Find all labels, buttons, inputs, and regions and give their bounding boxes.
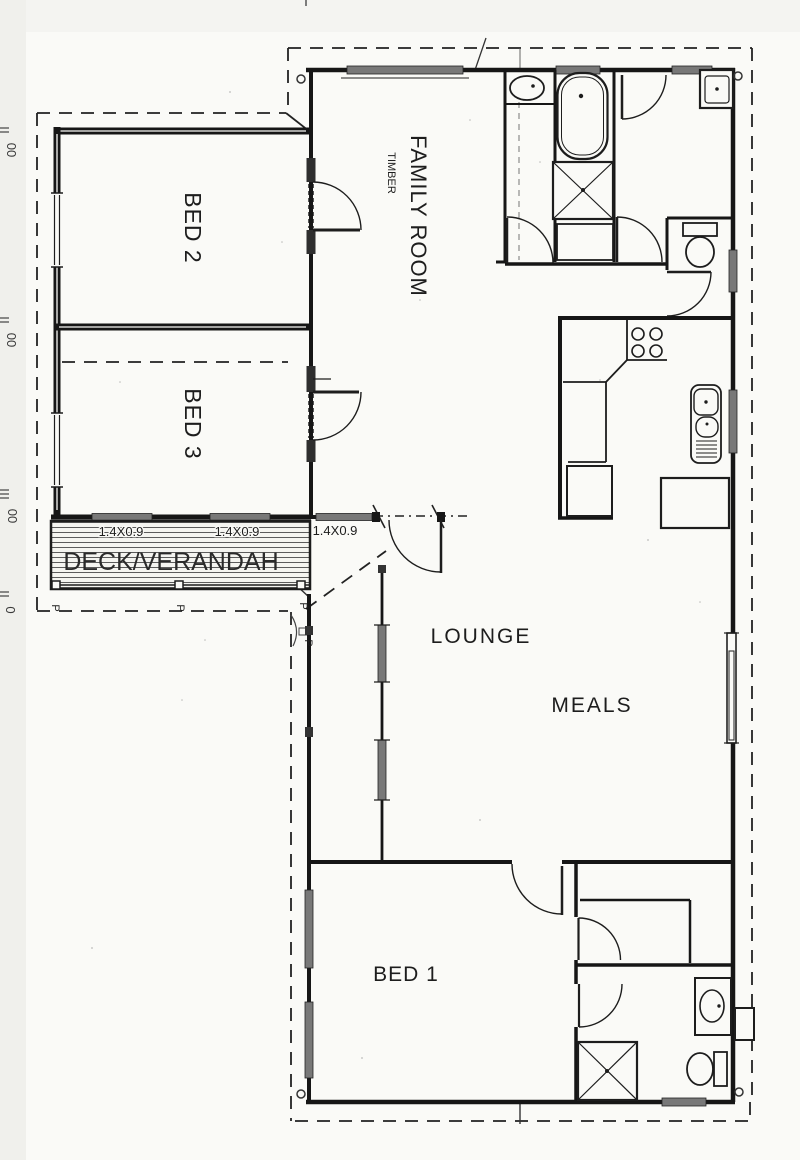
room-label-lounge: LOUNGE — [431, 625, 532, 648]
kitchen-sink — [691, 385, 721, 463]
lounge-wall-jamb — [305, 626, 313, 635]
ensuite-south-window — [662, 1098, 706, 1106]
hot-water-unit — [735, 1008, 754, 1040]
edge-mark: 0 — [3, 606, 18, 613]
meals-east-window — [724, 633, 739, 743]
floor-plan-scan: BED 2 BED 3 FAMILY ROOM TIMBER DECK/VERA… — [0, 0, 800, 1160]
deck-post — [175, 581, 183, 589]
deck-post — [297, 581, 305, 589]
lounge-window-1 — [378, 625, 386, 682]
deck-window-2 — [210, 514, 270, 521]
family-room-north-window — [347, 66, 463, 74]
family-room-material-label: TIMBER — [385, 152, 397, 194]
room-label-deck: DECK/VERANDAH — [63, 548, 278, 576]
room-label-meals: MEALS — [551, 694, 632, 717]
deck-post — [52, 581, 60, 589]
toilet-cistern — [683, 223, 717, 236]
kitchen-east-window — [729, 390, 737, 453]
lounge-wall-jamb — [305, 727, 313, 737]
window-dimension-label: 1.4X0.9 — [313, 523, 358, 538]
edge-mark: 00 — [4, 143, 19, 157]
ensuite-shower — [578, 1042, 637, 1100]
laundry-tub — [700, 70, 733, 108]
shower — [553, 162, 613, 219]
kitchen-return-bench — [661, 478, 729, 528]
room-label-bed1: BED 1 — [373, 963, 439, 986]
toilet-cistern — [714, 1052, 727, 1086]
post-label: P — [49, 604, 61, 611]
room-label-bed2: BED 2 — [180, 192, 206, 263]
lounge-window-2 — [378, 740, 386, 800]
window-dimension-label: 1.4X0.9 — [215, 524, 260, 539]
wing-south-wall — [51, 514, 311, 521]
post-label: P — [174, 604, 186, 611]
room-label-family-room: FAMILY ROOM — [406, 135, 431, 297]
toilet-bowl — [687, 1053, 713, 1085]
bed2-west-window — [51, 193, 63, 267]
post-label: P — [297, 602, 309, 609]
bath-bench — [557, 224, 613, 260]
family-window — [316, 514, 372, 521]
bathtub — [558, 73, 608, 159]
window-dimension-label: 1.4X0.9 — [99, 524, 144, 539]
bed3-west-window — [51, 413, 63, 487]
edge-mark: 00 — [4, 333, 19, 347]
post-label: P — [302, 639, 314, 646]
edge-mark: 00 — [5, 509, 20, 523]
bed1-west-window-2 — [305, 1002, 313, 1078]
deck-window-1 — [92, 514, 152, 521]
toilet-bowl — [686, 237, 714, 267]
kitchen-appliance-space — [567, 466, 612, 516]
wc-east-window — [729, 250, 737, 292]
vanity-basin — [510, 76, 544, 100]
bed1-west-window-1 — [305, 890, 313, 968]
floor-plan-drawing: BED 2 BED 3 FAMILY ROOM TIMBER DECK/VERA… — [0, 0, 800, 1160]
room-label-bed3: BED 3 — [180, 388, 206, 459]
